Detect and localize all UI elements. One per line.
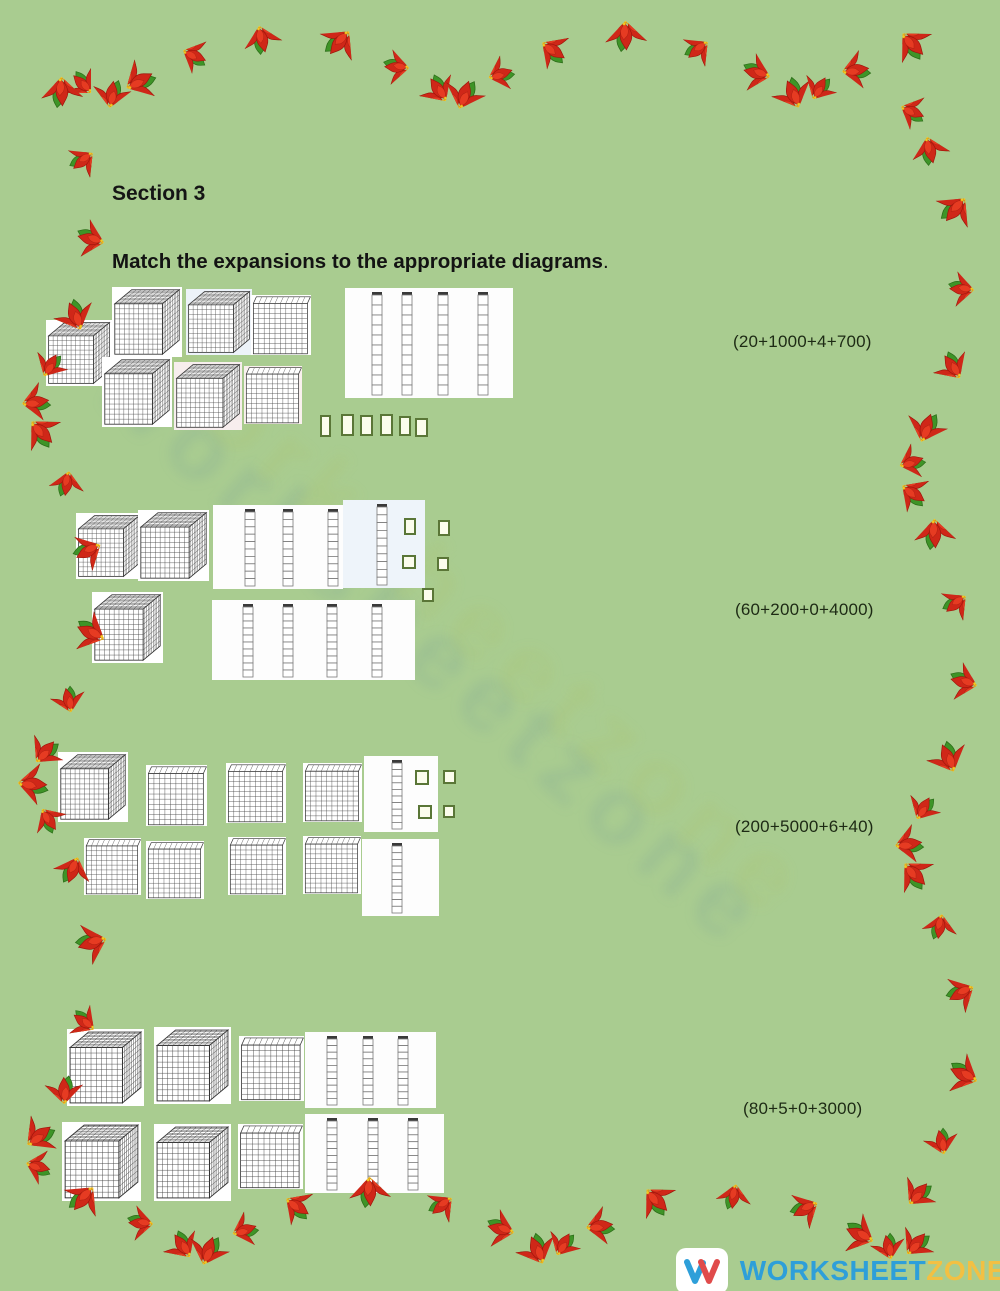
worksheet-page: worksheetzone worksheetzone Section 3 Ma… [0,0,1000,1291]
section-title: Section 3 [112,182,205,206]
hundreds-flat [146,841,204,899]
thousands-cube [92,592,163,663]
ones-unit [360,415,373,436]
hundreds-flat [146,765,207,826]
ones-unit [418,805,432,819]
brand-footer: WORKSHEETZONE [676,1251,1000,1291]
thousands-cube [102,357,172,427]
hundreds-flat [251,295,311,355]
tens-rod-panel [212,600,415,680]
brand-name[interactable]: WORKSHEETZONE [740,1255,1000,1287]
brand-word-worksheet: WORKSHEET [740,1255,927,1286]
tens-rod-panel [305,1032,436,1108]
ones-unit [415,418,428,437]
ones-unit [341,414,354,436]
ones-unit [402,555,416,569]
hundreds-flat [238,1124,303,1189]
expansion-label-2: (60+200+0+4000) [735,600,874,620]
thousands-cube [138,510,209,581]
worksheetzone-logo-icon[interactable] [676,1248,728,1291]
instruction-bold: Match the expansions to the appropriate … [112,250,603,273]
hundreds-flat [226,763,286,823]
poinsettia-icon [905,1141,968,1204]
ones-unit [399,416,411,436]
tens-rod-panel [362,839,439,916]
hundreds-flat [244,366,302,424]
ones-unit [320,415,331,437]
hundreds-flat [303,836,361,894]
ones-unit [443,805,455,818]
hundreds-flat [239,1036,304,1101]
tens-rod-panel [213,505,343,589]
poinsettia-icon [901,33,966,98]
ones-unit [380,414,393,436]
instruction-text: Match the expansions to the appropriate … [112,250,609,274]
ones-unit [404,518,416,535]
ones-unit [443,770,456,784]
expansion-label-3: (200+5000+6+40) [735,817,874,837]
ones-unit [437,557,449,571]
hundreds-flat [303,763,362,822]
hundreds-flat [228,837,286,895]
thousands-cube [186,289,252,355]
expansion-label-1: (20+1000+4+700) [733,332,872,352]
tens-rod-panel [345,288,513,398]
ones-unit [415,770,429,785]
expansion-label-4: (80+5+0+3000) [743,1099,862,1119]
instruction-period: . [603,250,609,273]
thousands-cube [154,1027,231,1104]
tens-rod-panel [343,500,425,588]
hundreds-flat [84,838,141,895]
brand-word-zone: ZONE [926,1255,1000,1286]
thousands-cube [112,287,182,357]
thousands-cube [174,362,242,430]
tens-rod-panel [364,756,438,832]
ones-unit [438,520,450,536]
ones-unit [422,588,434,602]
